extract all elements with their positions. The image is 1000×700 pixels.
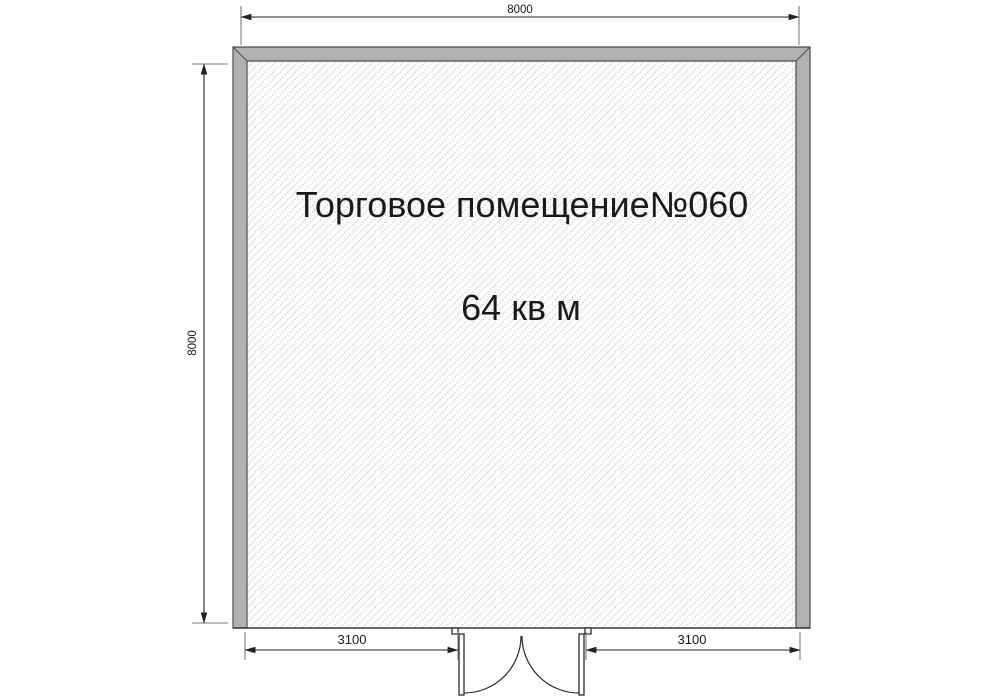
double-door xyxy=(452,628,591,695)
room xyxy=(233,47,810,628)
dimension-label-bottom-left: 3100 xyxy=(338,632,367,647)
room-interior-hatch xyxy=(247,61,796,628)
room-title: Торговое помещение№060 xyxy=(296,184,749,225)
dimension-label-left: 8000 xyxy=(187,330,199,356)
dimension-bottom-right: 3100 xyxy=(586,632,800,660)
dimension-label-bottom-right: 3100 xyxy=(678,632,707,647)
room-area-label: 64 кв м xyxy=(461,287,581,328)
dimension-left: 8000 xyxy=(187,64,228,623)
door-swing-arc-right xyxy=(522,636,579,693)
floor-plan-canvas: 8000 8000 3100 3100 Торговое помещение№0… xyxy=(0,0,1000,700)
door-swing-arc-left xyxy=(464,636,521,693)
floor-plan-drawing: 8000 8000 3100 3100 Торговое помещение№0… xyxy=(0,0,1000,700)
door-leaf-left xyxy=(459,634,464,695)
dimension-label-top: 8000 xyxy=(507,4,533,16)
door-leaf-right xyxy=(579,634,584,695)
dimension-bottom-left: 3100 xyxy=(245,632,458,660)
dimension-top: 8000 xyxy=(241,4,799,45)
door-jamb-left xyxy=(452,628,458,634)
